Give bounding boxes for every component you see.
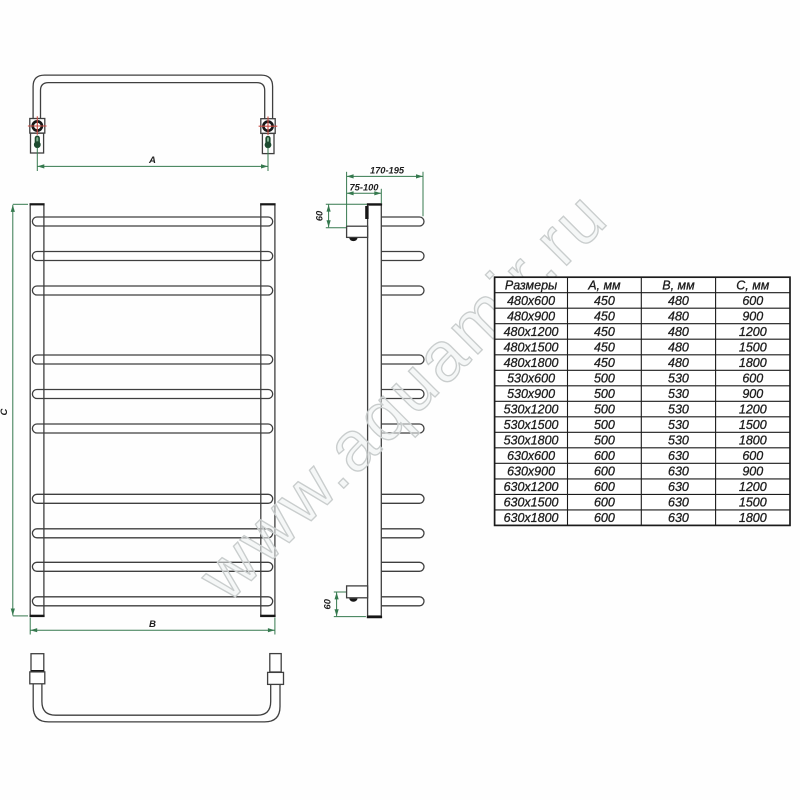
svg-text:530: 530 — [668, 418, 689, 432]
svg-text:480x900: 480x900 — [507, 309, 555, 323]
svg-text:900: 900 — [742, 309, 763, 323]
svg-text:530: 530 — [668, 403, 689, 417]
svg-text:480x1200: 480x1200 — [504, 325, 559, 339]
svg-text:500: 500 — [594, 434, 615, 448]
svg-text:450: 450 — [594, 325, 615, 339]
svg-text:480: 480 — [668, 309, 689, 323]
svg-text:500: 500 — [594, 387, 615, 401]
svg-text:600: 600 — [594, 449, 615, 463]
svg-text:480: 480 — [668, 340, 689, 354]
svg-text:А, мм: А, мм — [587, 278, 621, 292]
svg-text:530x1200: 530x1200 — [504, 403, 559, 417]
svg-text:С, мм: С, мм — [736, 278, 770, 292]
svg-text:1500: 1500 — [739, 340, 767, 354]
svg-text:630x1200: 630x1200 — [504, 480, 559, 494]
svg-text:500: 500 — [594, 403, 615, 417]
svg-text:1200: 1200 — [739, 480, 767, 494]
svg-text:630x600: 630x600 — [507, 449, 555, 463]
svg-text:630x1800: 630x1800 — [504, 511, 559, 525]
svg-text:900: 900 — [742, 465, 763, 479]
svg-text:600: 600 — [742, 371, 763, 385]
svg-text:600: 600 — [594, 465, 615, 479]
svg-text:630: 630 — [668, 496, 689, 510]
svg-text:530x1500: 530x1500 — [504, 418, 559, 432]
svg-text:В, мм: В, мм — [662, 278, 695, 292]
svg-text:1200: 1200 — [739, 403, 767, 417]
svg-text:480x1500: 480x1500 — [504, 340, 559, 354]
svg-text:450: 450 — [594, 340, 615, 354]
svg-text:630: 630 — [668, 465, 689, 479]
svg-text:450: 450 — [594, 356, 615, 370]
svg-text:530: 530 — [668, 371, 689, 385]
svg-text:600: 600 — [742, 449, 763, 463]
svg-text:530x600: 530x600 — [507, 371, 555, 385]
svg-text:530x900: 530x900 — [507, 387, 555, 401]
svg-text:1500: 1500 — [739, 496, 767, 510]
svg-text:480: 480 — [668, 325, 689, 339]
svg-text:480x600: 480x600 — [507, 294, 555, 308]
svg-text:630: 630 — [668, 511, 689, 525]
svg-text:530: 530 — [668, 434, 689, 448]
svg-text:Размеры: Размеры — [505, 278, 557, 292]
svg-text:450: 450 — [594, 309, 615, 323]
svg-text:530x1800: 530x1800 — [504, 434, 559, 448]
svg-text:600: 600 — [742, 294, 763, 308]
svg-text:600: 600 — [594, 511, 615, 525]
svg-text:1800: 1800 — [739, 434, 767, 448]
svg-text:C: C — [0, 407, 10, 415]
svg-text:530: 530 — [668, 387, 689, 401]
svg-text:A: A — [148, 155, 156, 166]
svg-text:60: 60 — [323, 598, 333, 609]
svg-text:60: 60 — [315, 210, 325, 221]
svg-text:B: B — [149, 619, 156, 630]
svg-text:450: 450 — [594, 294, 615, 308]
svg-text:1800: 1800 — [739, 356, 767, 370]
svg-text:170-195: 170-195 — [370, 165, 405, 175]
svg-text:500: 500 — [594, 371, 615, 385]
svg-text:480x1800: 480x1800 — [504, 356, 559, 370]
svg-text:900: 900 — [742, 387, 763, 401]
svg-text:75-100: 75-100 — [350, 183, 380, 193]
svg-text:600: 600 — [594, 496, 615, 510]
svg-text:630x900: 630x900 — [507, 465, 555, 479]
svg-text:630: 630 — [668, 449, 689, 463]
svg-text:500: 500 — [594, 418, 615, 432]
svg-text:1200: 1200 — [739, 325, 767, 339]
svg-text:480: 480 — [668, 294, 689, 308]
svg-text:600: 600 — [594, 480, 615, 494]
svg-text:630: 630 — [668, 480, 689, 494]
svg-text:1500: 1500 — [739, 418, 767, 432]
svg-text:480: 480 — [668, 356, 689, 370]
svg-text:630x1500: 630x1500 — [504, 496, 559, 510]
svg-text:1800: 1800 — [739, 511, 767, 525]
